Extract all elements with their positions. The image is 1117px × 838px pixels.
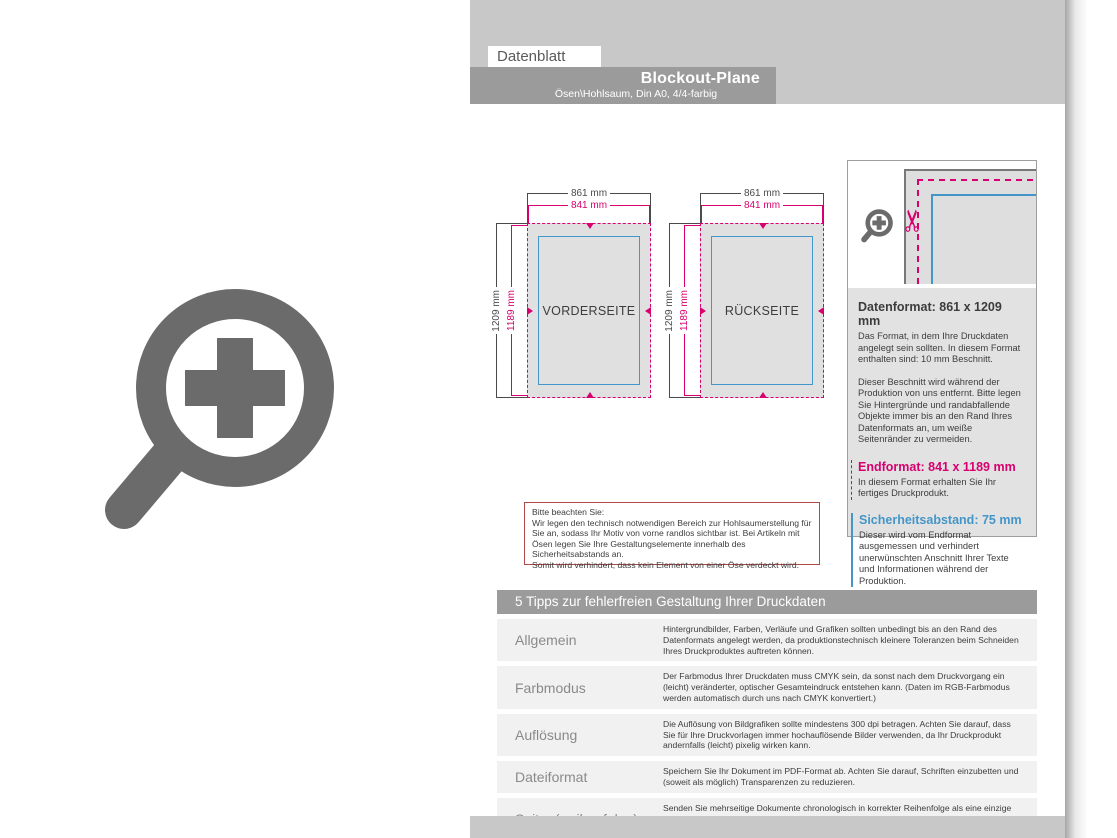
- dimension-width-inner: 841 mm: [701, 200, 823, 211]
- extension-line: [669, 397, 700, 398]
- sicherheitsabstand-heading: Sicherheitsabstand: 75 mm: [859, 513, 1026, 527]
- extension-line: [511, 225, 528, 226]
- corner-detail-illustration: ✂: [848, 161, 1036, 288]
- endformat-heading: Endformat: 841 x 1189 mm: [858, 460, 1026, 474]
- side-label: RÜCKSEITE: [725, 304, 799, 318]
- center-mark: [527, 307, 533, 315]
- center-mark: [818, 307, 824, 315]
- front-diagram: 861 mm 841 mm 1209 mm 1189 mm: [482, 183, 654, 403]
- extension-line: [701, 205, 702, 223]
- extension-line: [496, 223, 527, 224]
- datenformat-text2: Dieser Beschnitt wird während der Produk…: [858, 377, 1026, 446]
- dimension-height-inner: 1189 mm: [678, 225, 690, 396]
- datenformat-heading: Datenformat: 861 x 1209 mm: [858, 300, 1026, 328]
- tip-text: Speichern Sie Ihr Dokument im PDF-Format…: [663, 761, 1037, 793]
- dimension-width-outer: 861 mm: [700, 188, 824, 199]
- extension-line: [669, 223, 700, 224]
- dimension-height-inner: 1189 mm: [505, 225, 517, 396]
- datasheet-screen: Datenblatt Blockout-Plane Ösen\Hohlsaum,…: [0, 0, 1117, 838]
- tip-text: Der Farbmodus Ihrer Druckdaten muss CMYK…: [663, 666, 1037, 708]
- notice-box: Bitte beachten Sie: Wir legen den techni…: [524, 502, 820, 565]
- center-mark: [759, 223, 767, 229]
- safety-margin-line: [931, 194, 1036, 196]
- dimension-height-outer: 1209 mm: [663, 223, 675, 398]
- extension-line: [684, 225, 701, 226]
- side-label: VORDERSEITE: [543, 304, 636, 318]
- tip-label: Auflösung: [497, 727, 663, 743]
- datenblatt-tab: Datenblatt: [488, 46, 601, 67]
- datasheet-page: Datenblatt Blockout-Plane Ösen\Hohlsaum,…: [470, 0, 1065, 838]
- extension-line: [528, 205, 529, 223]
- safety-area: VORDERSEITE: [538, 236, 640, 385]
- zoom-in-icon: [861, 208, 897, 246]
- extension-line: [822, 205, 823, 223]
- dimension-width-outer: 861 mm: [527, 188, 651, 199]
- endformat-block: Endformat: 841 x 1189 mm In diesem Forma…: [851, 460, 1026, 500]
- product-banner: Blockout-Plane Ösen\Hohlsaum, Din A0, 4/…: [470, 67, 776, 104]
- extension-line: [649, 205, 650, 223]
- data-format-area: VORDERSEITE: [527, 223, 651, 398]
- center-mark: [586, 223, 594, 229]
- dimension-height-outer: 1209 mm: [490, 223, 502, 398]
- format-descriptions: Datenformat: 861 x 1209 mm Das Format, i…: [848, 288, 1036, 536]
- tip-label: Allgemein: [497, 632, 663, 648]
- sicherheitsabstand-block: Sicherheitsabstand: 75 mm Dieser wird vo…: [851, 513, 1026, 588]
- tip-row-aufloesung: Auflösung Die Auflösung von Bildgrafiken…: [497, 714, 1037, 756]
- center-mark: [700, 307, 706, 315]
- center-mark: [586, 392, 594, 398]
- safety-margin-line: [931, 194, 933, 284]
- footer-band: [470, 816, 1065, 838]
- extension-line: [511, 395, 528, 396]
- product-title: Blockout-Plane: [470, 67, 776, 88]
- endformat-cut-line: [917, 179, 1036, 181]
- extension-line: [496, 397, 527, 398]
- tip-label: Farbmodus: [497, 680, 663, 696]
- back-diagram: 861 mm 841 mm 1209 mm 1189 mm: [655, 183, 827, 403]
- tips-table: Allgemein Hintergrundbilder, Farben, Ver…: [497, 619, 1037, 838]
- zoom-in-icon: [102, 278, 366, 558]
- format-info-panel: ✂ Datenformat: 861 x 1209 mm Das Format,…: [847, 160, 1037, 537]
- tip-text: Hintergrundbilder, Farben, Verläufe und …: [663, 619, 1037, 661]
- extension-line: [684, 395, 701, 396]
- center-mark: [759, 392, 767, 398]
- extension-line: [823, 193, 824, 223]
- endformat-text: In diesem Format erhalten Sie Ihr fertig…: [858, 477, 1026, 500]
- dimension-width-inner: 841 mm: [528, 200, 650, 211]
- tip-text: Die Auflösung von Bildgrafiken sollte mi…: [663, 714, 1037, 756]
- tip-row-dateiformat: Dateiformat Speichern Sie Ihr Dokument i…: [497, 761, 1037, 793]
- tip-label: Dateiformat: [497, 769, 663, 785]
- datenformat-text: Das Format, in dem Ihre Druckdaten angel…: [858, 331, 1026, 366]
- scissors-icon: ✂: [896, 208, 931, 233]
- extension-line: [650, 193, 651, 223]
- safety-area: RÜCKSEITE: [711, 236, 813, 385]
- center-mark: [645, 307, 651, 315]
- header-band: Datenblatt Blockout-Plane Ösen\Hohlsaum,…: [470, 0, 1065, 104]
- product-subtitle: Ösen\Hohlsaum, Din A0, 4/4-farbig: [470, 88, 776, 100]
- sicherheitsabstand-text: Dieser wird vom Endformat ausgemessen un…: [859, 530, 1026, 588]
- tip-row-farbmodus: Farbmodus Der Farbmodus Ihrer Druckdaten…: [497, 666, 1037, 708]
- data-format-area: RÜCKSEITE: [700, 223, 824, 398]
- tip-row-allgemein: Allgemein Hintergrundbilder, Farben, Ver…: [497, 619, 1037, 661]
- tips-heading: 5 Tipps zur fehlerfreien Gestaltung Ihre…: [497, 590, 1037, 614]
- page-edge-shadow: [1065, 0, 1091, 838]
